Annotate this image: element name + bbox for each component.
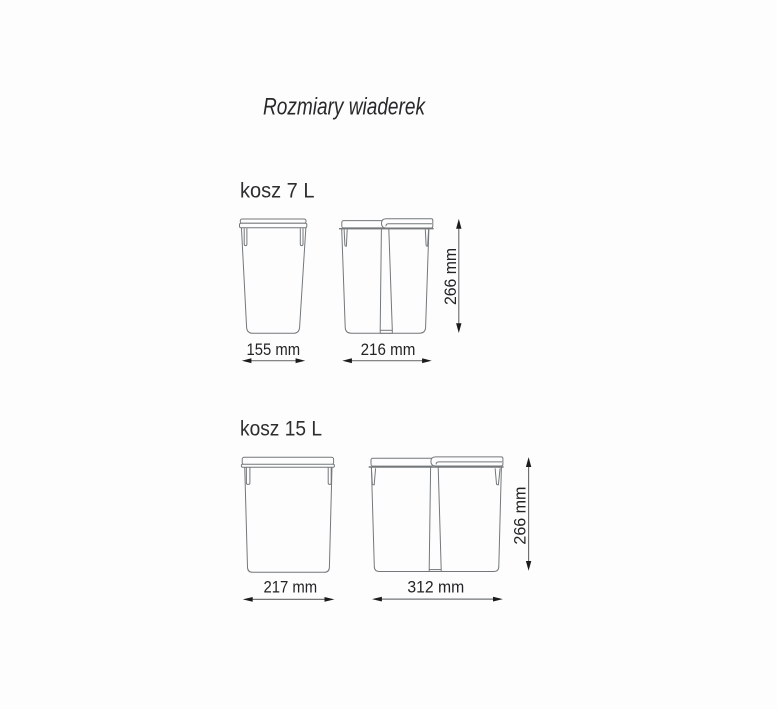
svg-text:266 mm: 266 mm xyxy=(511,487,529,545)
svg-text:312 mm: 312 mm xyxy=(407,579,464,597)
svg-text:266 mm: 266 mm xyxy=(442,248,460,305)
svg-text:kosz 7 L: kosz 7 L xyxy=(240,180,315,203)
svg-text:Rozmiary wiaderek: Rozmiary wiaderek xyxy=(263,94,427,121)
svg-text:155 mm: 155 mm xyxy=(247,341,301,359)
svg-text:216 mm: 216 mm xyxy=(361,341,416,359)
svg-text:kosz 15 L: kosz 15 L xyxy=(240,418,322,441)
svg-text:217 mm: 217 mm xyxy=(263,579,317,597)
